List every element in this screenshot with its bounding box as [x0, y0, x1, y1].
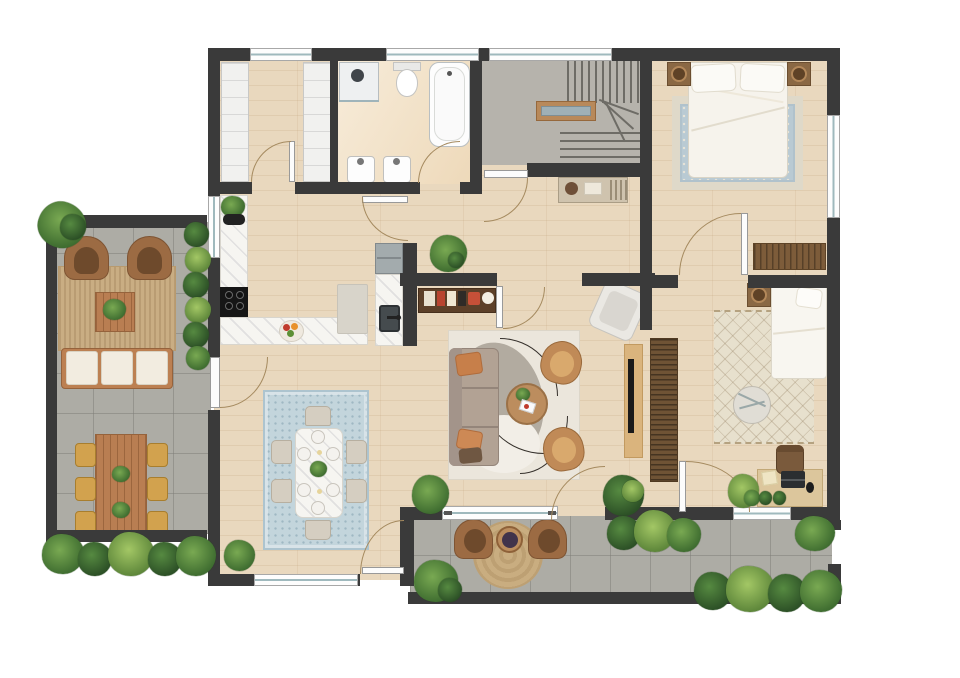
stair-tread: [560, 140, 640, 142]
wall-living-north-b: [582, 273, 655, 286]
stair-tread: [560, 132, 640, 134]
fridge-line: [377, 257, 401, 259]
dining-chair: [271, 479, 292, 503]
plant: [224, 540, 255, 571]
plant: [60, 214, 86, 240]
shrub: [438, 578, 462, 602]
stair-tread: [588, 59, 590, 103]
outdoor-dining-table: [95, 434, 147, 542]
pillow: [739, 63, 785, 93]
window: [489, 48, 612, 61]
wall-terrace-left: [46, 215, 57, 542]
kitchen-tray: [223, 214, 245, 225]
fire-bowl-inner: [502, 532, 518, 548]
bedroom2-door-leaf: [679, 461, 686, 512]
plant-hedge: [183, 272, 209, 298]
patio-wicker-seat: [538, 529, 560, 553]
book: [424, 291, 435, 306]
sliding-door-arrow: [444, 511, 452, 515]
dining-chair: [346, 479, 367, 503]
plate: [297, 447, 311, 461]
dining-chair: [305, 520, 331, 540]
stair-tread: [595, 59, 597, 103]
floor-plan-canvas: [0, 0, 960, 678]
outdoor-chair: [75, 477, 96, 501]
book: [447, 291, 456, 306]
outdoor-sofa-cushion: [136, 351, 168, 385]
closet-wardrobe: [303, 62, 333, 182]
stair-tread: [630, 59, 632, 103]
magazine-dot: [524, 404, 529, 409]
plant-hedge: [183, 322, 209, 348]
wall-bedroom1-bottom-b: [748, 275, 840, 288]
wall-hall-row: [295, 182, 420, 194]
shrub: [667, 518, 701, 552]
dining-chair: [271, 440, 292, 464]
outdoor-chair: [147, 477, 168, 501]
console-tray: [584, 182, 602, 195]
window: [386, 48, 479, 61]
kitchen-faucet-base: [396, 315, 401, 320]
wall-bedroom1-west: [640, 61, 652, 275]
outdoor-table-plant: [112, 466, 130, 482]
plate: [311, 501, 325, 515]
cooktop-burner: [236, 302, 244, 310]
wall-left-upper: [208, 61, 220, 193]
mouse: [806, 482, 814, 493]
stair-tread: [602, 59, 604, 103]
wall-kitchen-divider: [403, 243, 417, 346]
sink-faucet: [357, 158, 364, 165]
book: [458, 291, 466, 306]
plate: [326, 483, 340, 497]
console-slat: [620, 180, 622, 200]
shrub: [108, 532, 154, 576]
plant: [412, 475, 449, 514]
bathtub-inner: [434, 67, 465, 141]
cooktop-burner: [225, 302, 233, 310]
console-slat: [610, 180, 612, 200]
plant-hedge: [185, 247, 211, 273]
plate: [311, 430, 325, 444]
stair-tread: [623, 59, 625, 103]
kitchen-mat: [337, 284, 368, 334]
stair-tread: [560, 148, 640, 150]
outdoor-chair: [75, 443, 96, 467]
sink-faucet: [393, 158, 400, 165]
stair-rail-inner: [541, 106, 591, 116]
wicker-chair-seat: [74, 247, 99, 274]
plant-hedge: [186, 346, 210, 370]
outdoor-chair: [147, 443, 168, 467]
living-door-leaf: [496, 286, 503, 328]
terrace-table-plant: [103, 299, 126, 320]
bedroom1-bench: [753, 243, 826, 270]
console-bowl: [565, 182, 578, 195]
plant: [744, 490, 760, 506]
window: [254, 574, 358, 586]
fruit: [291, 323, 298, 330]
shower: [339, 62, 379, 102]
plant: [622, 480, 644, 502]
stair-tread: [567, 59, 569, 103]
window: [827, 115, 840, 218]
wall-hall-row: [460, 182, 482, 194]
shrub: [800, 570, 842, 612]
sliding-door: [442, 506, 558, 520]
tv: [628, 359, 634, 433]
desk-chair-back: [776, 445, 804, 452]
shelf-bowl: [482, 292, 494, 304]
shower-glass: [339, 100, 379, 102]
dining-chair: [305, 406, 331, 426]
toilet-bowl: [396, 69, 418, 97]
wall-hall-row: [208, 182, 252, 194]
pillow: [795, 286, 824, 309]
nightstand-tray: [791, 66, 807, 82]
plant-hedge: [184, 222, 209, 247]
fruit: [287, 330, 294, 337]
sofa-pillow: [455, 351, 484, 376]
centerpiece-plant: [310, 461, 327, 477]
stair-tread: [616, 59, 618, 103]
wall-stairs-bottom: [527, 163, 650, 177]
pillow: [690, 63, 736, 93]
patio-wicker-seat: [464, 529, 486, 553]
wall-bedroom2-west: [640, 288, 652, 330]
sofa-seam: [462, 426, 499, 428]
shrub: [176, 536, 216, 576]
plant-small: [759, 491, 772, 505]
terrace-door-leaf: [210, 357, 220, 408]
console-slat: [625, 180, 627, 200]
window: [208, 196, 220, 258]
plate: [326, 447, 340, 461]
cooktop: [220, 287, 248, 317]
nightstand-tray: [751, 287, 767, 303]
sofa-seam: [462, 387, 499, 389]
laptop-hinge: [781, 479, 805, 481]
window: [250, 48, 312, 61]
sofa-pillow: [458, 447, 482, 464]
stair-tread: [574, 59, 576, 103]
outdoor-table-plant: [112, 502, 130, 518]
stair-tread: [637, 59, 639, 103]
wall-bath-west: [330, 61, 338, 182]
cooktop-burner: [236, 291, 244, 299]
nightstand-tray: [671, 66, 687, 82]
shrub: [795, 516, 835, 551]
entry-door-leaf: [484, 170, 528, 178]
notepad: [761, 470, 778, 486]
plant: [448, 252, 464, 268]
outdoor-sofa-cushion: [66, 351, 98, 385]
book: [468, 292, 480, 305]
shrub: [726, 566, 774, 612]
book: [437, 291, 445, 306]
stair-tread: [609, 59, 611, 103]
cooktop-burner: [225, 291, 233, 299]
plate: [297, 483, 311, 497]
candle: [317, 450, 322, 455]
shower-head: [351, 69, 364, 82]
candle: [317, 489, 322, 494]
closet-wardrobe: [221, 62, 249, 182]
plant-hedge: [185, 297, 211, 323]
dining-chair: [346, 440, 367, 464]
plant-small: [773, 491, 786, 505]
console-slat: [615, 180, 617, 200]
bedroom1-door-leaf: [741, 213, 748, 275]
slatted-cabinet: [650, 338, 678, 482]
stair-tread: [581, 59, 583, 103]
wall-bath-east: [470, 61, 482, 182]
shrub: [78, 542, 112, 576]
bathtub-drain: [447, 71, 452, 76]
outdoor-sofa-cushion: [101, 351, 133, 385]
fridge: [375, 243, 403, 274]
wicker-chair-seat: [137, 247, 162, 274]
stair-tread: [560, 156, 640, 158]
